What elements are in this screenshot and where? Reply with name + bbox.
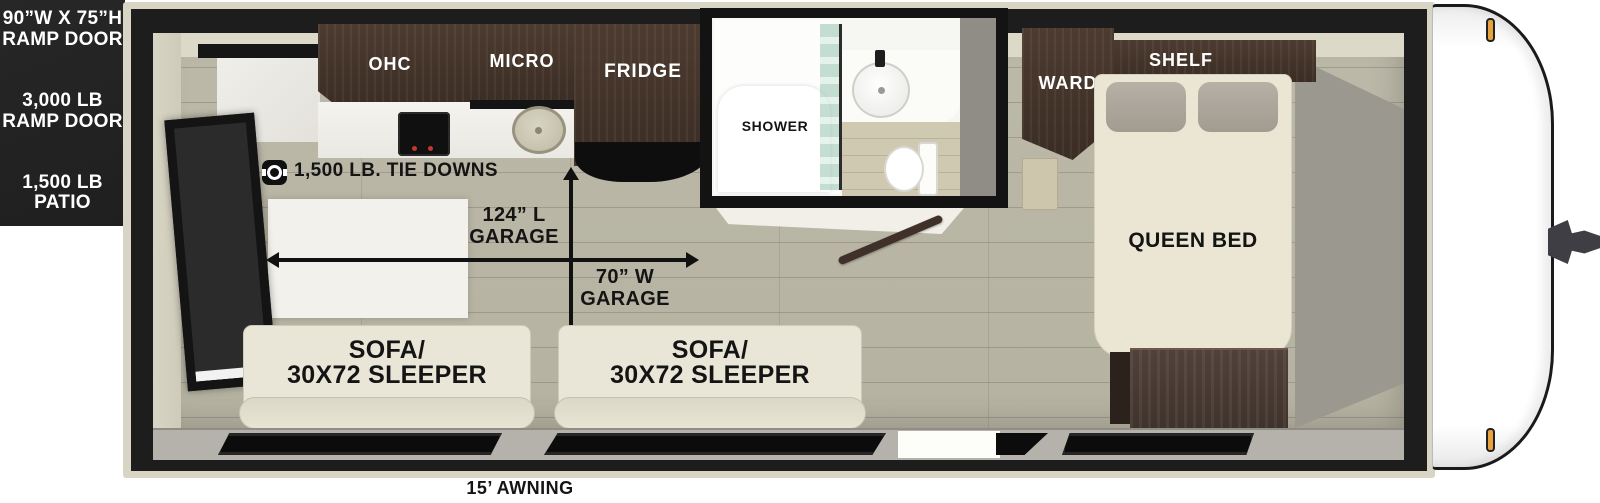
front-interior-area [1295, 57, 1404, 428]
sofa-seat [239, 397, 535, 429]
garage-width-arrow [276, 258, 688, 262]
bathroom-sink-drain [878, 87, 885, 94]
window-under-sofa1 [218, 433, 502, 455]
fridge-label: FRIDGE [574, 62, 712, 83]
window-bedroom [1062, 433, 1254, 455]
ramp-door-size-label: 90”W X 75”H RAMP DOOR [0, 9, 125, 50]
front-wall-window [198, 44, 318, 58]
arrow-head-up [563, 167, 579, 180]
sofa-sleeper-2: SOFA/ 30X72 SLEEPER [558, 325, 862, 435]
micro-label: MICRO [470, 52, 574, 71]
sofa-seat [554, 397, 866, 429]
pillow-right [1198, 82, 1278, 132]
floorplan-canvas: 90”W X 75”H RAMP DOOR 3,000 LB RAMP DOOR… [0, 0, 1600, 503]
nightstand [1022, 158, 1058, 210]
front-cap [1432, 4, 1554, 470]
bathroom-right-wall [960, 18, 996, 196]
entry-door [898, 431, 1000, 458]
window-under-sofa2 [544, 433, 886, 455]
cooktop-knobs [412, 146, 417, 151]
tie-down-slot-left [262, 169, 266, 176]
cooktop [398, 112, 450, 156]
counter-backsplash [470, 100, 574, 109]
tie-down-ring [267, 165, 282, 180]
sofa-sleeper-1: SOFA/ 30X72 SLEEPER [243, 325, 531, 435]
foot-dresser [1130, 350, 1288, 434]
ramp-door-spec-panel: 90”W X 75”H RAMP DOOR 3,000 LB RAMP DOOR… [0, 0, 125, 226]
ramp-door-weight-label: 3,000 LB RAMP DOOR [0, 91, 125, 132]
garage-length-label: 124” L GARAGE [462, 205, 566, 248]
awning-label: 15’ AWNING [395, 479, 645, 498]
arrow-head-right [686, 252, 699, 268]
shower-glass [820, 24, 840, 190]
patio-weight-label: 1,500 LB PATIO [0, 173, 125, 214]
garage-width-label: 70” W GARAGE [576, 267, 674, 310]
tie-down-anchor-icon [262, 160, 287, 185]
tie-downs-label: 1,500 LB. TIE DOWNS [294, 161, 498, 182]
pillow-left [1106, 82, 1186, 132]
ohc-label: OHC [330, 55, 450, 74]
shower-pan-curve [718, 86, 830, 192]
marker-light-top [1486, 18, 1495, 42]
tie-down-slot-right [283, 169, 287, 176]
sofa1-label: SOFA/ 30X72 SLEEPER [243, 338, 531, 388]
sink-drain [535, 127, 542, 134]
sofa2-label: SOFA/ 30X72 SLEEPER [558, 338, 862, 388]
shelf-label: SHELF [1096, 51, 1266, 70]
arrow-head-left [266, 252, 279, 268]
marker-light-bottom [1486, 428, 1495, 452]
queen-bed-label: QUEEN BED [1094, 230, 1292, 253]
toilet-bowl [884, 146, 924, 192]
hitch-coupler [1548, 220, 1600, 264]
bathroom-faucet [875, 50, 885, 67]
